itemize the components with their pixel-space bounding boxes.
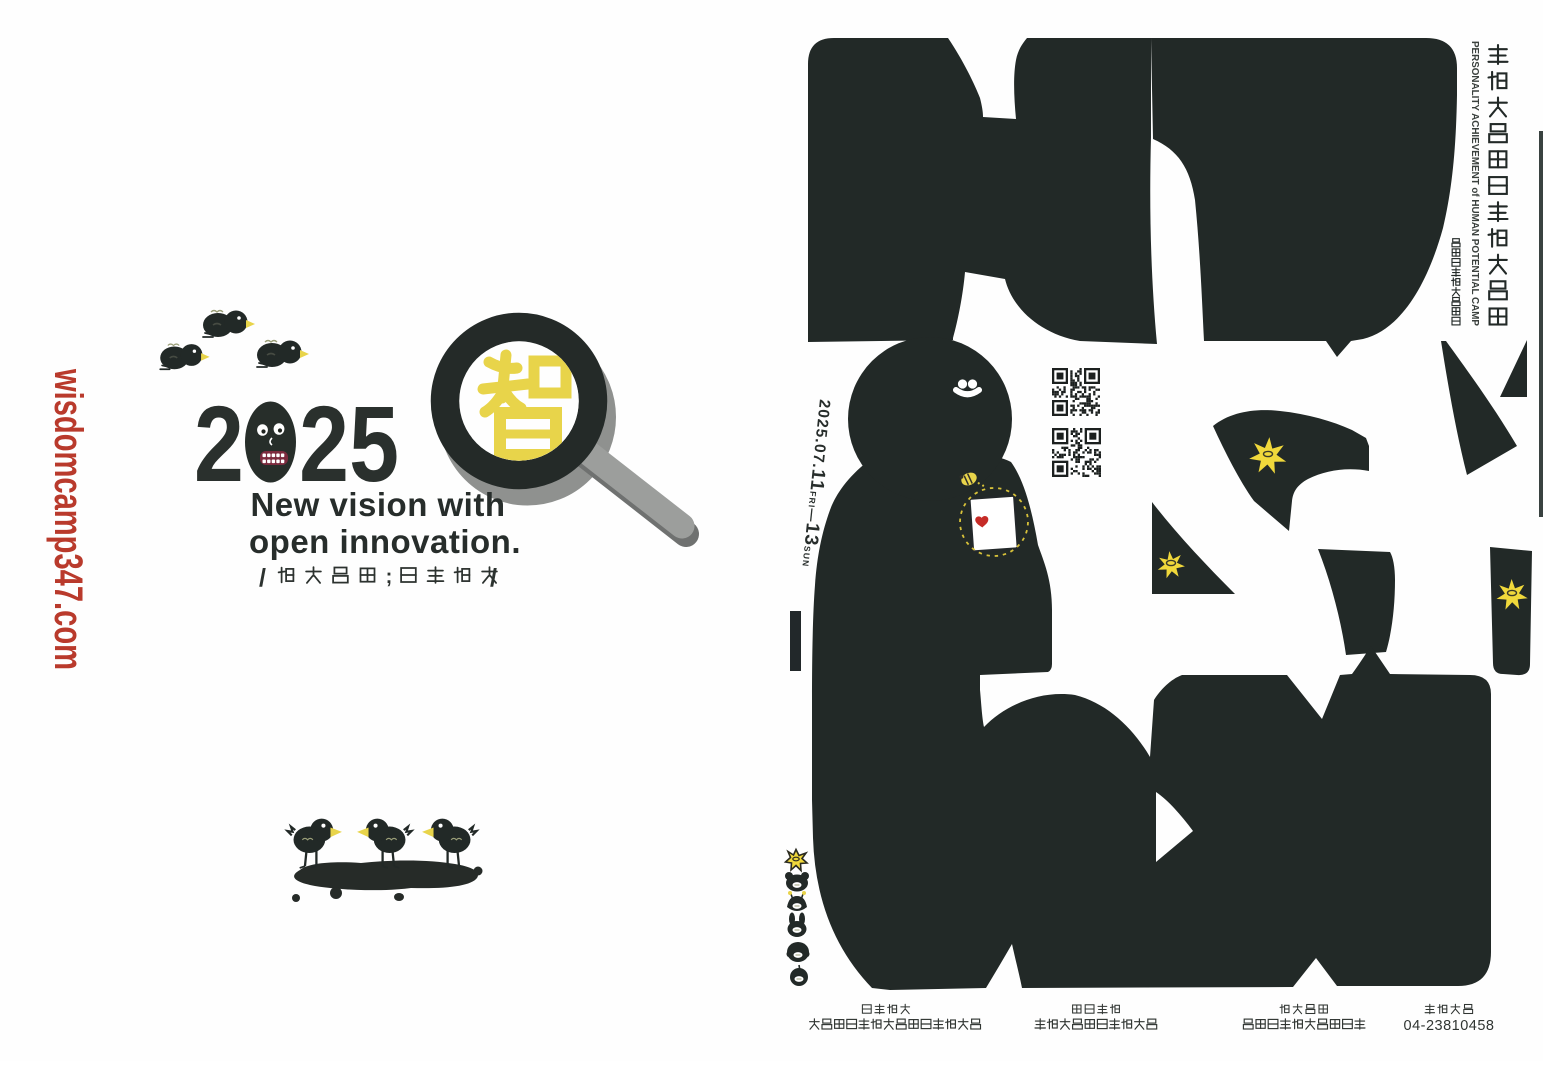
svg-text:;: ; bbox=[386, 566, 393, 588]
svg-text:New vision with: New vision with bbox=[250, 486, 505, 523]
svg-text:open innovation.: open innovation. bbox=[249, 523, 521, 560]
svg-text:/: / bbox=[259, 564, 266, 592]
svg-text:04-23810458: 04-23810458 bbox=[1404, 1018, 1495, 1034]
svg-text:PERSONALITY ACHIEVEMENT of HUM: PERSONALITY ACHIEVEMENT of HUMAN POTENTI… bbox=[1469, 41, 1481, 326]
svg-text:2: 2 bbox=[194, 384, 244, 505]
svg-text:wisdomcamp347.com: wisdomcamp347.com bbox=[46, 368, 90, 670]
